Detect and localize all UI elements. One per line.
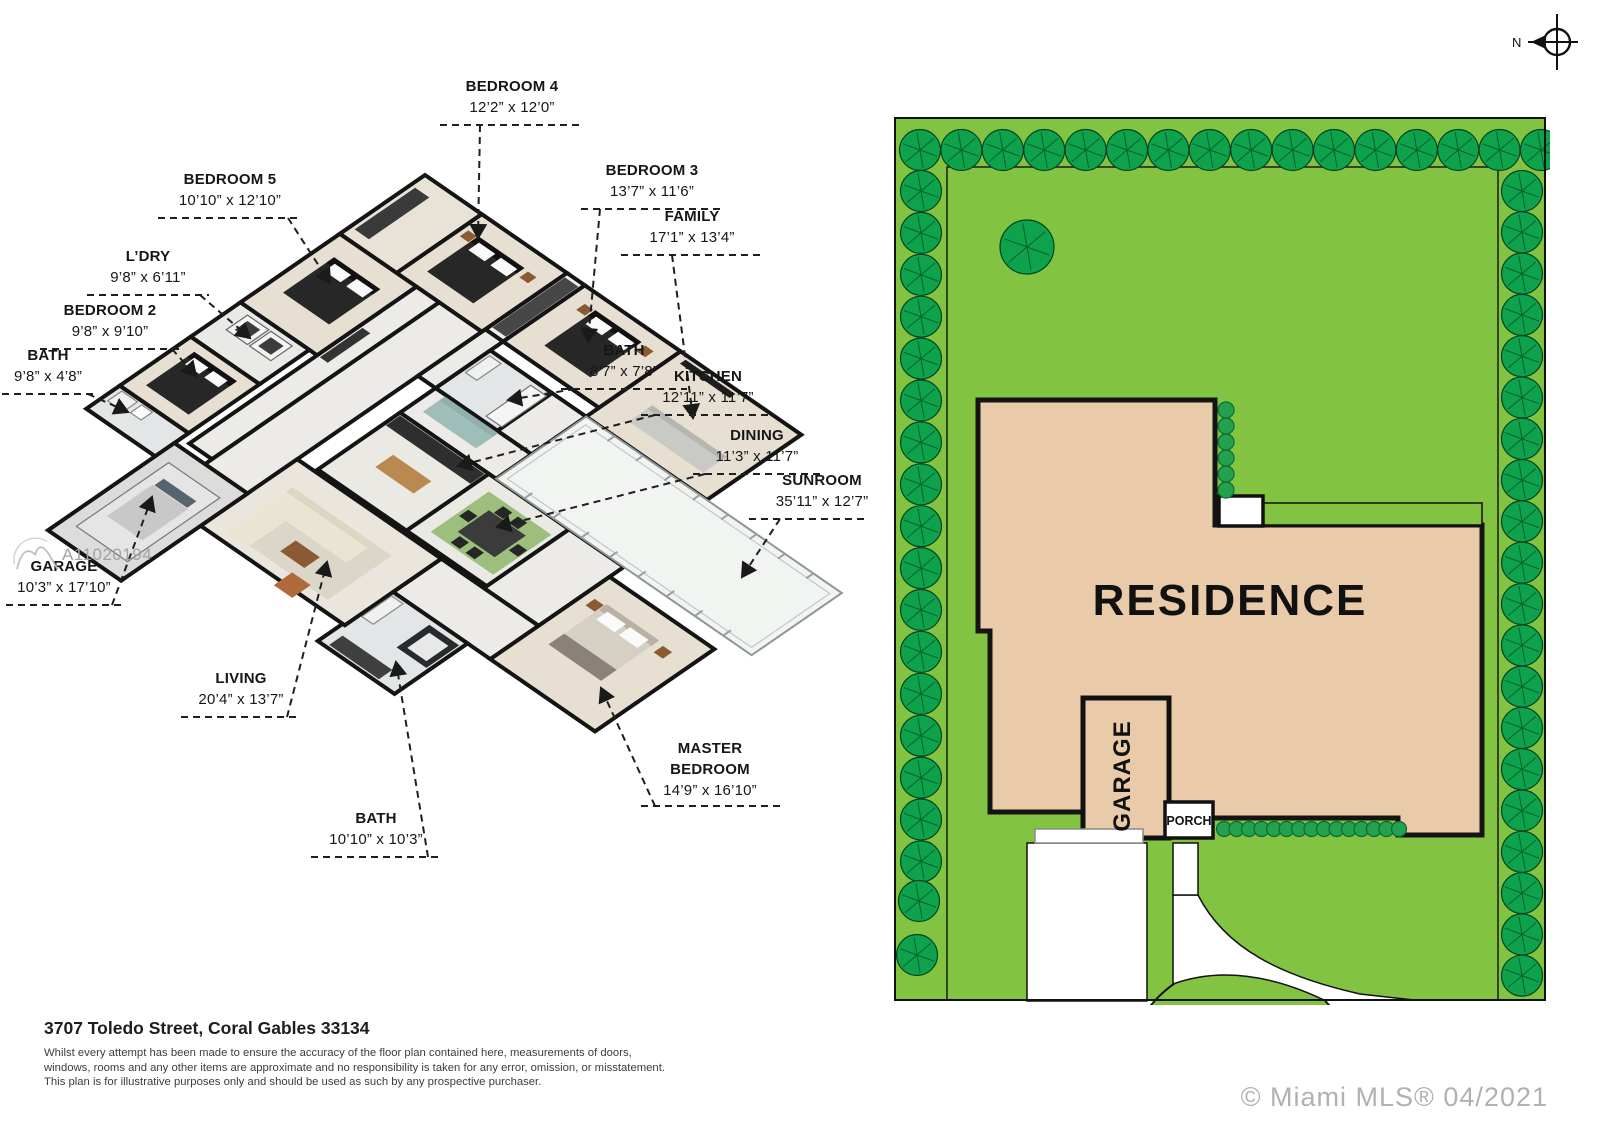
compass: N bbox=[1500, 8, 1590, 78]
room-dims: 8’7” x 7’8” bbox=[590, 361, 658, 382]
disclaimer-line: Whilst every attempt has been made to en… bbox=[44, 1046, 665, 1061]
room-name: BATH bbox=[329, 808, 423, 829]
room-label-bedroom-5: BEDROOM 5 10’10” x 12’10” bbox=[179, 169, 281, 211]
residence-label: RESIDENCE bbox=[1093, 576, 1368, 625]
room-name: DINING bbox=[716, 425, 799, 446]
garage-label: GARAGE bbox=[1109, 720, 1136, 831]
room-name: BATH bbox=[14, 345, 82, 366]
room-name: L’DRY bbox=[110, 246, 186, 267]
room-name: MASTER BEDROOM bbox=[652, 738, 768, 780]
room-label-bedroom-4: BEDROOM 4 12’2” x 12’0” bbox=[466, 76, 559, 118]
side-yard-strip bbox=[1240, 503, 1482, 525]
room-name: BEDROOM 3 bbox=[606, 160, 699, 181]
room-dims: 9’8” x 9’10” bbox=[64, 321, 157, 342]
disclaimer-line: This plan is for illustrative purposes o… bbox=[44, 1075, 665, 1090]
room-label-bath-2: BATH 8’7” x 7’8” bbox=[590, 340, 658, 382]
room-dims: 14’9” x 16’10” bbox=[652, 780, 768, 801]
disclaimer: Whilst every attempt has been made to en… bbox=[44, 1046, 665, 1090]
room-dims: 10’10” x 12’10” bbox=[179, 190, 281, 211]
compass-n-label: N bbox=[1512, 35, 1521, 50]
room-label-bath-1: BATH 9’8” x 4’8” bbox=[14, 345, 82, 387]
room-name: BATH bbox=[590, 340, 658, 361]
room-label-master-bedroom: MASTER BEDROOM 14’9” x 16’10” bbox=[652, 738, 768, 801]
room-dims: 17’1” x 13’4” bbox=[649, 227, 734, 248]
room-name: KITCHEN bbox=[662, 366, 753, 387]
room-dims: 9’8” x 6’11” bbox=[110, 267, 186, 288]
room-name: FAMILY bbox=[649, 206, 734, 227]
room-label-living: LIVING 20’4” x 13’7” bbox=[198, 668, 283, 710]
room-label-sunroom: SUNROOM 35’11” x 12’7” bbox=[776, 470, 869, 512]
room-name: BEDROOM 5 bbox=[179, 169, 281, 190]
room-label-bedroom-2: BEDROOM 2 9’8” x 9’10” bbox=[64, 300, 157, 342]
watermark-logo-icon bbox=[10, 530, 62, 580]
room-label-laundry: L’DRY 9’8” x 6’11” bbox=[110, 246, 186, 288]
room-dims: 10’10” x 10’3” bbox=[329, 829, 423, 850]
room-name: LIVING bbox=[198, 668, 283, 689]
room-label-bedroom-3: BEDROOM 3 13’7” x 11’6” bbox=[606, 160, 699, 202]
room-label-bath-3: BATH 10’10” x 10’3” bbox=[329, 808, 423, 850]
room-dims: 12’2” x 12’0” bbox=[466, 97, 559, 118]
driveway bbox=[1027, 843, 1147, 1001]
room-dims: 12’11” x 11’7” bbox=[662, 387, 753, 408]
room-name: BEDROOM 2 bbox=[64, 300, 157, 321]
property-address: 3707 Toledo Street, Coral Gables 33134 bbox=[44, 1018, 370, 1039]
site-plan-drawing: RESIDENCE GARAGE PORCH bbox=[890, 110, 1550, 1005]
room-label-dining: DINING 11’3” x 11’7” bbox=[716, 425, 799, 467]
room-name: BEDROOM 4 bbox=[466, 76, 559, 97]
compass-north-arrow-icon bbox=[1531, 35, 1546, 49]
porch-label: PORCH bbox=[1166, 814, 1211, 828]
watermark-id: A11020194 bbox=[62, 545, 152, 565]
mls-listing-watermark: A11020194 bbox=[10, 530, 152, 580]
room-label-kitchen: KITCHEN 12’11” x 11’7” bbox=[662, 366, 753, 408]
mls-copyright: © Miami MLS® 04/2021 bbox=[1241, 1082, 1548, 1113]
room-dims: 13’7” x 11’6” bbox=[606, 181, 699, 202]
room-dims: 10’3” x 17’10” bbox=[17, 577, 111, 598]
room-dims: 11’3” x 11’7” bbox=[716, 446, 799, 467]
disclaimer-line: windows, rooms and any other items are a… bbox=[44, 1061, 665, 1076]
room-name: SUNROOM bbox=[776, 470, 869, 491]
room-dims: 9’8” x 4’8” bbox=[14, 366, 82, 387]
floor-plan-panel: BEDROOM 4 12’2” x 12’0” BEDROOM 5 10’10”… bbox=[0, 0, 880, 1010]
room-dims: 35’11” x 12’7” bbox=[776, 491, 869, 512]
room-dims: 20’4” x 13’7” bbox=[198, 689, 283, 710]
room-label-family: FAMILY 17’1” x 13’4” bbox=[649, 206, 734, 248]
entry-stoop bbox=[1219, 496, 1263, 526]
porch-walkway bbox=[1173, 843, 1198, 895]
